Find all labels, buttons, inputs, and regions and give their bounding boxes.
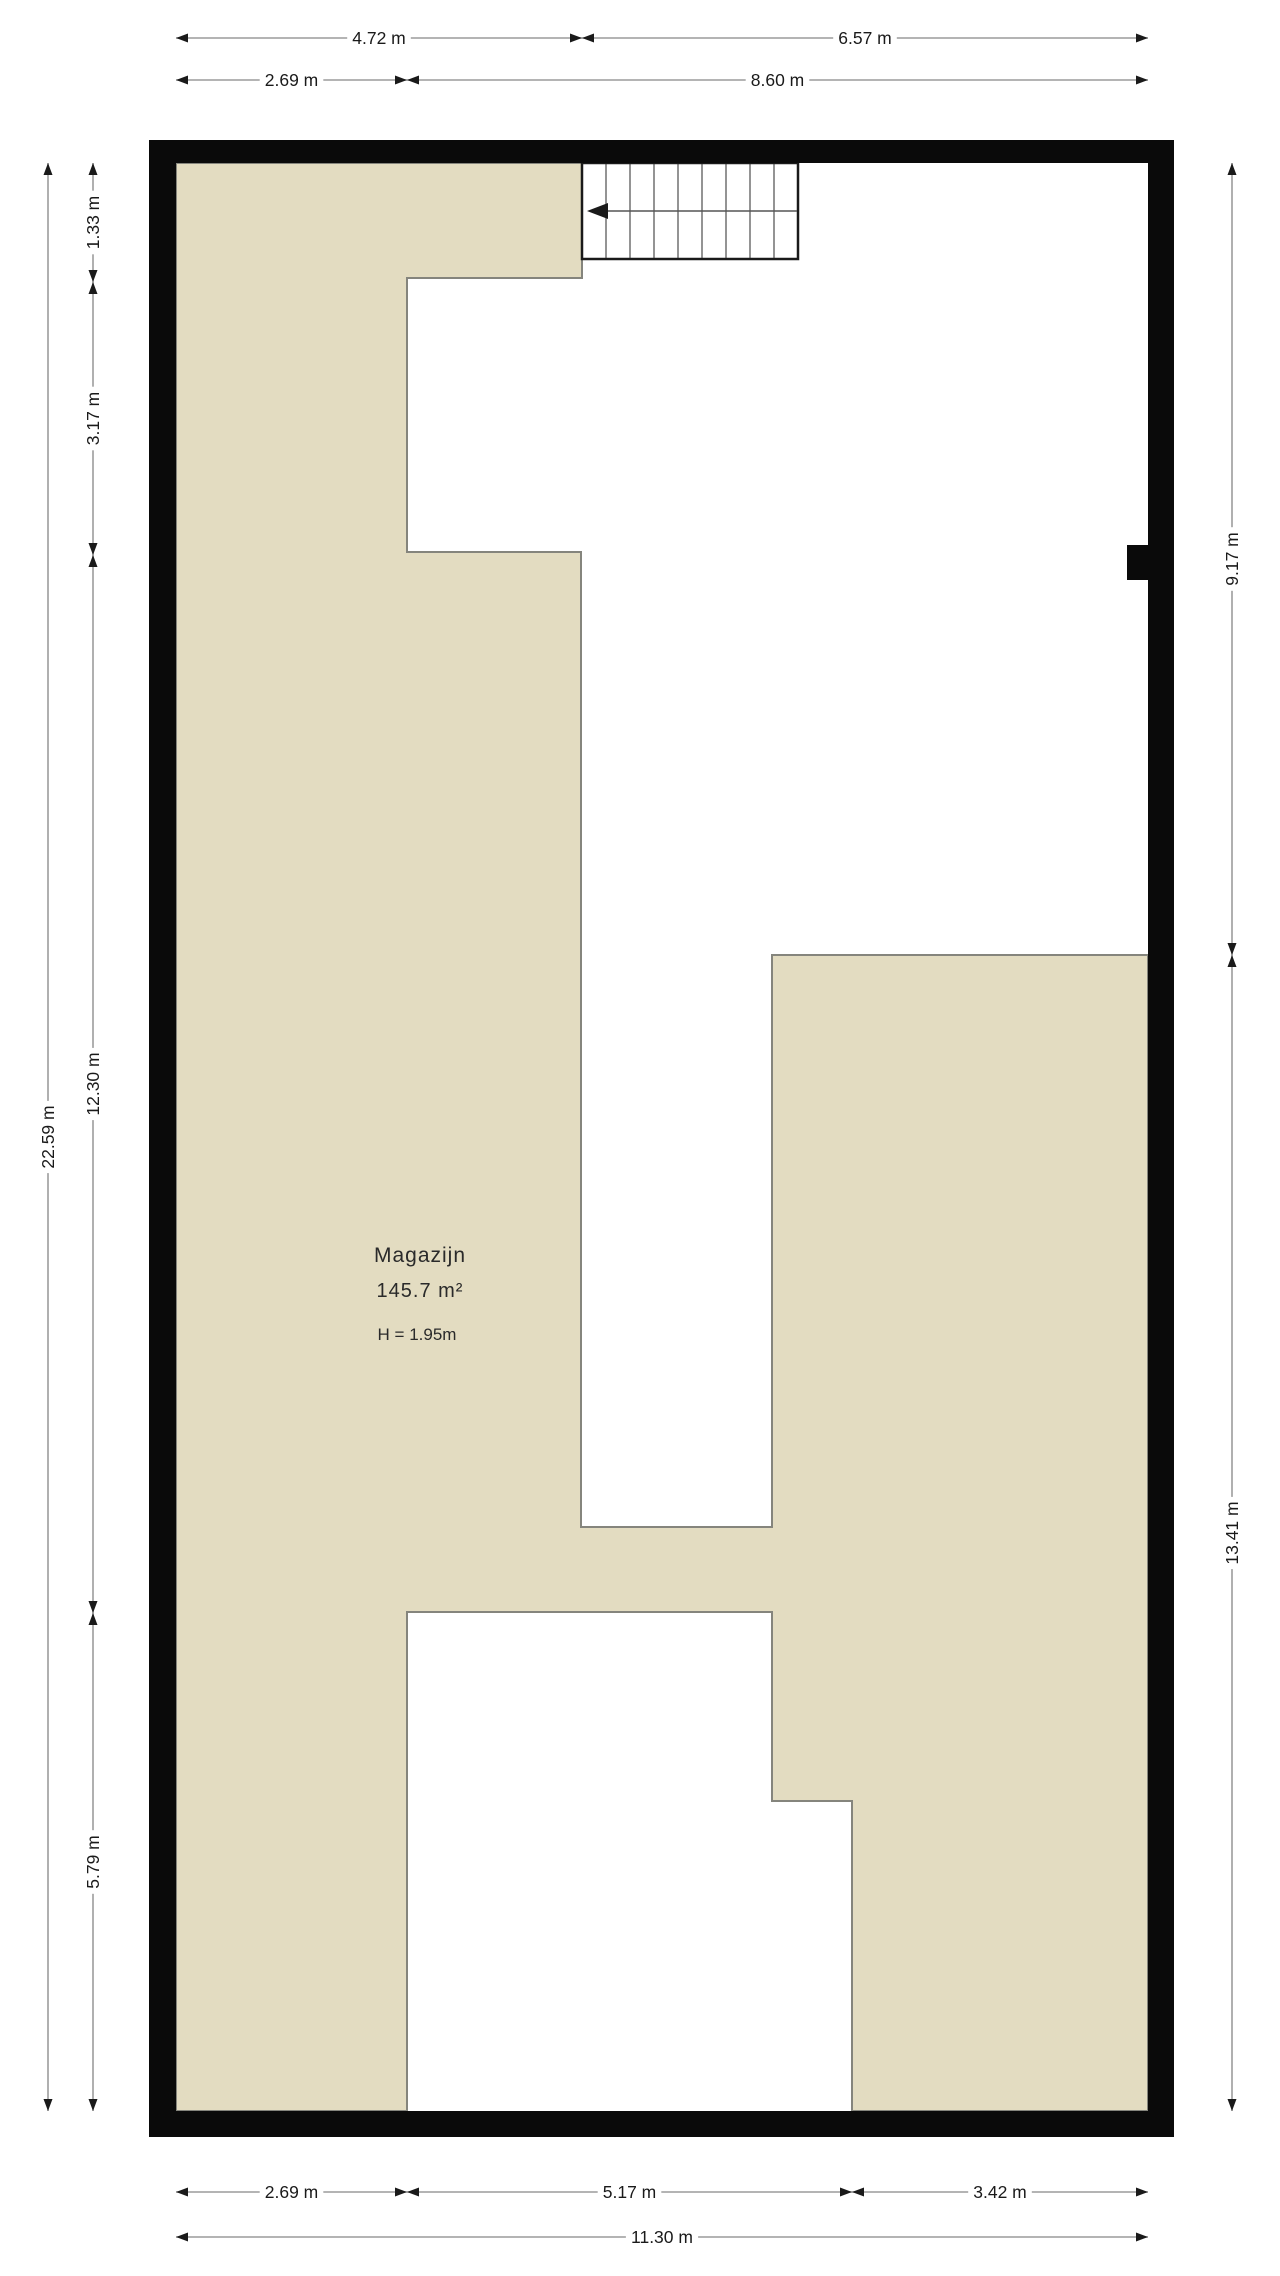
dimension-3.17m: 3.17 m	[81, 282, 105, 555]
dimension-label: 9.17 m	[1222, 532, 1242, 586]
dimension-4.72m: 4.72 m	[176, 26, 582, 50]
room-name: Magazijn	[374, 1244, 466, 1267]
room-area: 145.7 m²	[377, 1280, 464, 1302]
dimension-8.60m: 8.60 m	[407, 68, 1148, 92]
dimension-label: 3.17 m	[83, 392, 103, 446]
dimension-label: 2.69 m	[265, 70, 319, 90]
dimension-5.17m: 5.17 m	[407, 2180, 852, 2204]
staircase	[582, 163, 798, 259]
dimension-2.69m: 2.69 m	[176, 2180, 407, 2204]
dimension-6.57m: 6.57 m	[582, 26, 1148, 50]
dimension-label: 2.69 m	[265, 2182, 319, 2202]
dimension-label: 5.17 m	[603, 2182, 657, 2202]
dimension-11.30m: 11.30 m	[176, 2225, 1148, 2249]
dimension-2.69m: 2.69 m	[176, 68, 407, 92]
dimension-label: 6.57 m	[838, 28, 892, 48]
floor-plan-drawing: 4.72 m6.57 m2.69 m8.60 m2.69 m5.17 m3.42…	[0, 0, 1280, 2276]
dimension-label: 12.30 m	[83, 1052, 103, 1115]
wall-stub	[1127, 545, 1148, 580]
room-height: H = 1.95m	[378, 1325, 457, 1344]
floor-plan: 4.72 m6.57 m2.69 m8.60 m2.69 m5.17 m3.42…	[0, 0, 1280, 2276]
dimension-1.33m: 1.33 m	[81, 163, 105, 282]
dimension-22.59m: 22.59 m	[36, 163, 60, 2111]
dimension-5.79m: 5.79 m	[81, 1613, 105, 2111]
dimension-label: 1.33 m	[83, 196, 103, 250]
room-label: Magazijn 145.7 m² H = 1.95m	[374, 1244, 466, 1344]
dimension-9.17m: 9.17 m	[1220, 163, 1244, 955]
dimension-label: 3.42 m	[973, 2182, 1027, 2202]
dimension-label: 5.79 m	[83, 1835, 103, 1889]
dimension-label: 4.72 m	[352, 28, 406, 48]
dimension-label: 22.59 m	[38, 1105, 58, 1168]
dimension-label: 8.60 m	[751, 70, 805, 90]
dimension-label: 13.41 m	[1222, 1501, 1242, 1564]
dimension-13.41m: 13.41 m	[1220, 955, 1244, 2111]
dimension-3.42m: 3.42 m	[852, 2180, 1148, 2204]
dimension-12.30m: 12.30 m	[81, 555, 105, 1613]
dimension-label: 11.30 m	[631, 2227, 693, 2247]
